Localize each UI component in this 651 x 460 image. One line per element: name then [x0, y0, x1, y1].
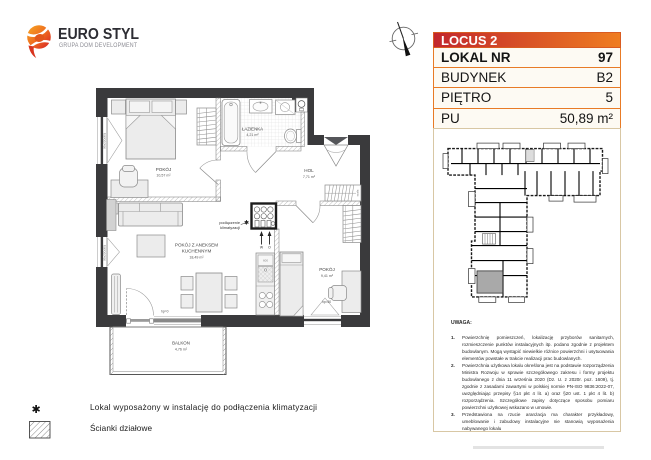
svg-text:BALKON: BALKON: [172, 341, 190, 346]
svg-text:4,21 m²: 4,21 m²: [246, 133, 259, 137]
svg-text:hp=0: hp=0: [161, 310, 169, 314]
svg-text:POKÓJ: POKÓJ: [156, 166, 172, 172]
svg-text:18,49 m²: 18,49 m²: [189, 256, 204, 260]
svg-text:szafa: szafa: [356, 189, 360, 196]
svg-text:90x220(90): 90x220(90): [102, 245, 106, 261]
svg-text:ŁAZIENKA: ŁAZIENKA: [242, 127, 263, 132]
svg-text:7,71 m²: 7,71 m²: [303, 175, 316, 179]
svg-text:POKÓJ: POKÓJ: [319, 266, 335, 272]
svg-text:90x220(90): 90x220(90): [102, 133, 106, 149]
svg-text:O: O: [268, 246, 271, 250]
svg-text:9,41 m²: 9,41 m²: [321, 274, 334, 278]
svg-text:600: 600: [263, 259, 268, 263]
svg-text:10,57 m²: 10,57 m²: [156, 174, 171, 178]
svg-text:W: W: [260, 246, 264, 250]
svg-text:POKÓJ Z ANEKSEM: POKÓJ Z ANEKSEM: [175, 242, 218, 248]
svg-text:klimatyzacji: klimatyzacji: [220, 225, 240, 230]
svg-text:KUCHENNYM: KUCHENNYM: [182, 249, 212, 254]
svg-text:hp=50: hp=50: [322, 300, 331, 304]
svg-text:HOL: HOL: [304, 168, 314, 173]
svg-text:4,76 m²: 4,76 m²: [175, 348, 188, 352]
